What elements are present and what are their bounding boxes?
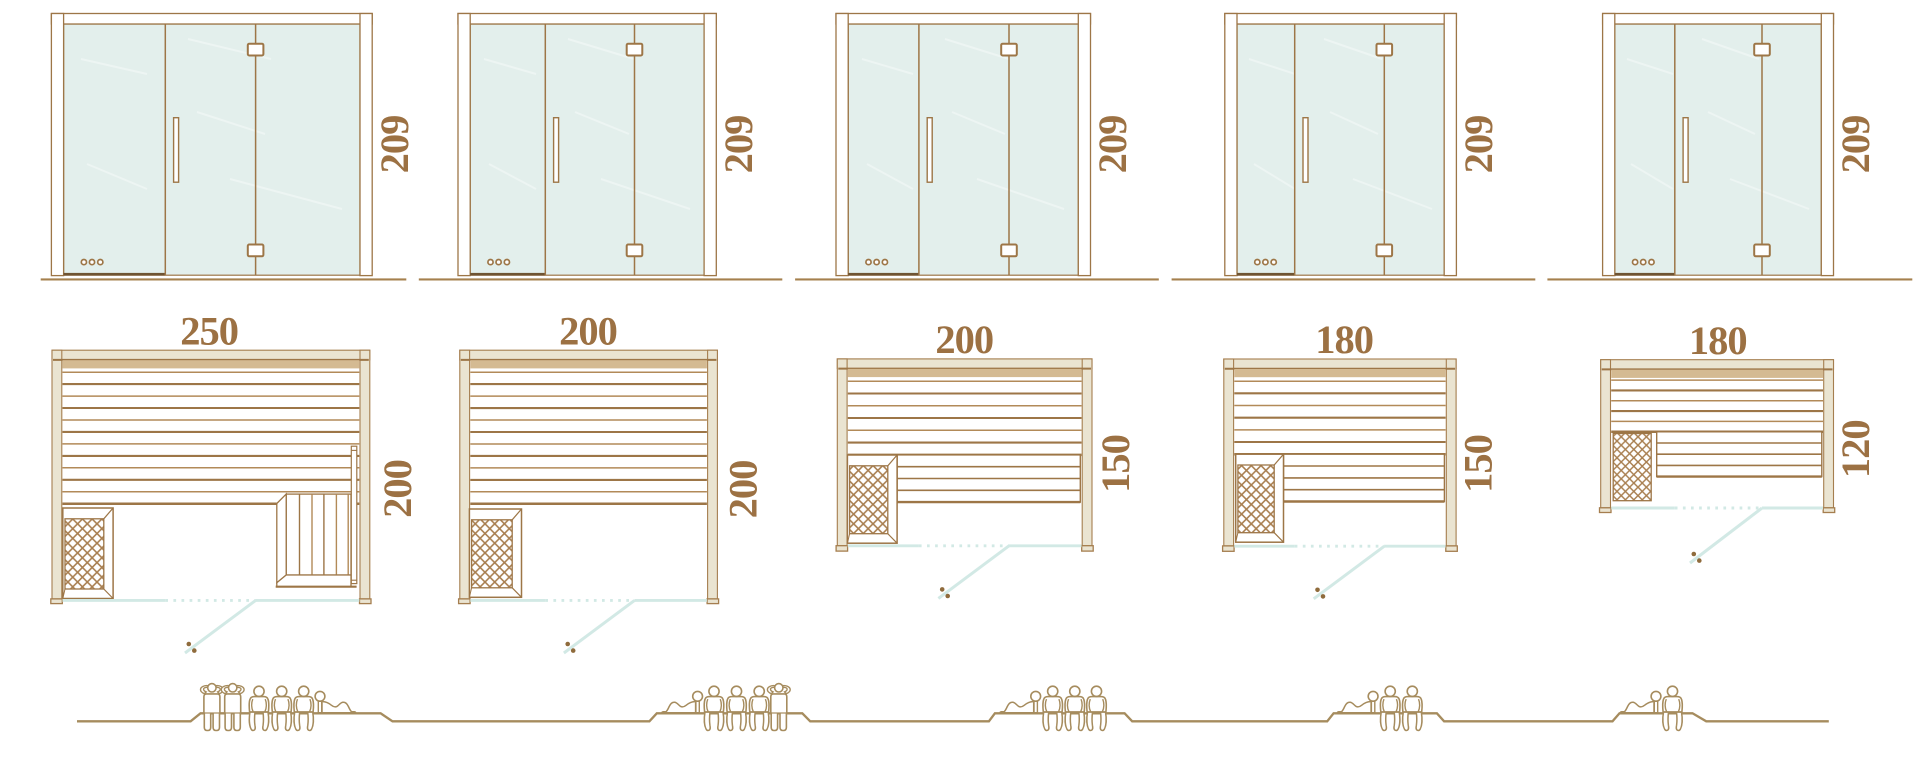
svg-text:209: 209 <box>1456 116 1501 174</box>
svg-text:209: 209 <box>372 116 417 174</box>
svg-text:200: 200 <box>375 460 420 518</box>
svg-text:200: 200 <box>720 461 765 519</box>
svg-text:209: 209 <box>1090 116 1135 174</box>
svg-text:120: 120 <box>1833 420 1878 478</box>
svg-text:150: 150 <box>1093 435 1138 493</box>
svg-text:200: 200 <box>935 317 993 362</box>
svg-text:250: 250 <box>180 308 238 353</box>
svg-text:150: 150 <box>1455 435 1500 493</box>
svg-text:180: 180 <box>1689 318 1747 363</box>
svg-text:200: 200 <box>559 308 617 353</box>
svg-text:209: 209 <box>1833 116 1878 174</box>
svg-text:180: 180 <box>1315 317 1373 362</box>
svg-text:209: 209 <box>716 116 761 174</box>
